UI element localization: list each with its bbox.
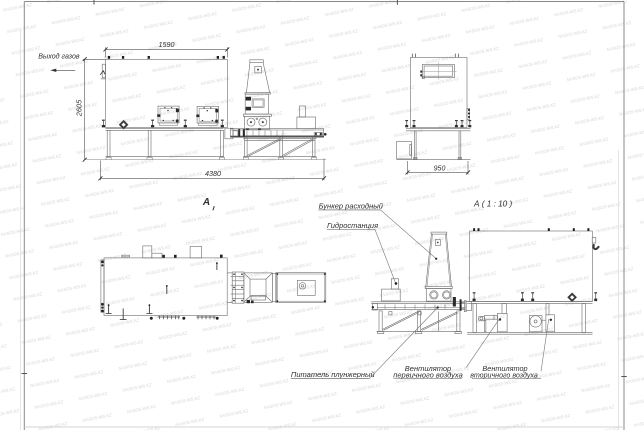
svg-text:А ( 1 : 10 ): А ( 1 : 10 ) [473, 200, 512, 209]
svg-text:Гидростанция: Гидростанция [327, 221, 378, 230]
svg-text:Бункер расходный: Бункер расходный [319, 201, 384, 210]
svg-text:950: 950 [434, 166, 446, 173]
svg-text:Питатель плунжерный: Питатель плунжерный [291, 370, 376, 379]
svg-text:4380: 4380 [205, 169, 221, 178]
svg-text:2605: 2605 [75, 99, 84, 117]
svg-text:1590: 1590 [159, 40, 175, 49]
svg-text:Выход газов: Выход газов [38, 53, 80, 61]
svg-text:первичного воздуха: первичного воздуха [393, 370, 463, 379]
svg-text:А: А [202, 197, 210, 208]
svg-text:вторичного воздуха: вторичного воздуха [470, 371, 538, 379]
